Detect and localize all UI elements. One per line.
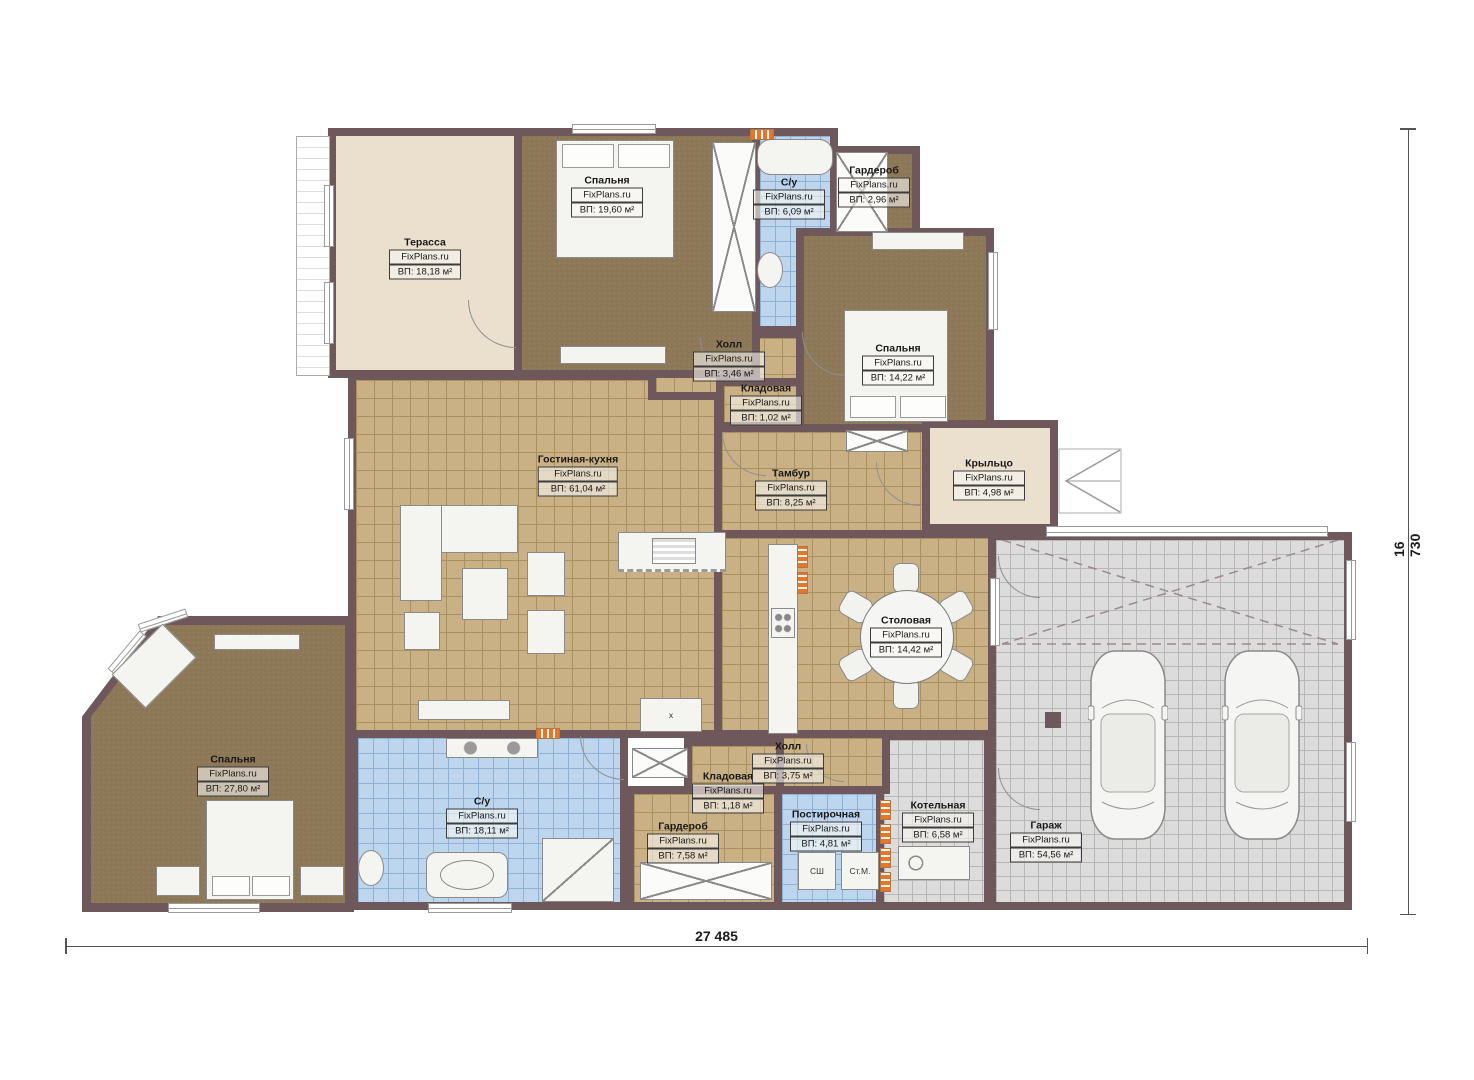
- dryer: СШ: [798, 852, 836, 890]
- room-label-bedroom-top: Спальня FixPlans.ru ВП: 19,60 м²: [571, 175, 643, 218]
- storage-closet: [632, 748, 688, 778]
- washing-machine: Ст.М.: [841, 852, 879, 890]
- side-table: x: [640, 698, 702, 732]
- bathtub-basin: [440, 860, 494, 890]
- kitchen-counter: [768, 544, 798, 734]
- room-label-bathroom-bottom: С/у FixPlans.ru ВП: 18,11 м²: [446, 796, 518, 839]
- window: [324, 185, 334, 247]
- sofa-chaise: [400, 505, 442, 601]
- cooktop: [771, 608, 795, 638]
- heater: [750, 129, 774, 140]
- double-sink: [446, 738, 538, 758]
- window: [572, 124, 656, 134]
- boiler-unit: [898, 846, 970, 880]
- dresser: [872, 232, 964, 250]
- window: [988, 252, 998, 330]
- toilet: [358, 850, 384, 886]
- armchair: [527, 610, 565, 654]
- room-label-hall-bottom: Холл FixPlans.ru ВП: 3,75 м²: [752, 741, 824, 784]
- room-label-bedroom-right: Спальня FixPlans.ru ВП: 14,22 м²: [862, 343, 934, 386]
- dimension-right-value: 16 730: [1391, 519, 1423, 557]
- floor-plan: x СШ Ст.М.: [0, 0, 1474, 1080]
- pillow: [212, 876, 250, 896]
- garage-column: [1045, 712, 1061, 728]
- wardrobe-closet: [640, 862, 772, 900]
- room-label-tambour: Тамбур FixPlans.ru ВП: 8,25 м²: [755, 468, 827, 511]
- room-label-living-kitchen: Гостиная-кухня FixPlans.ru ВП: 61,04 м²: [538, 454, 618, 497]
- nightstand: [300, 866, 344, 896]
- room-label-hall-top: Холл FixPlans.ru ВП: 3,46 м²: [693, 339, 765, 382]
- room-label-terrace: Терасса FixPlans.ru ВП: 18,18 м²: [389, 237, 461, 280]
- bathtub: [757, 139, 833, 175]
- door-bathroom-bottom: [580, 736, 624, 780]
- room-label-garage: Гараж FixPlans.ru ВП: 54,56 м²: [1010, 820, 1082, 863]
- heater: [797, 572, 808, 594]
- heater: [880, 824, 891, 844]
- pillow: [562, 144, 614, 168]
- room-label-bedroom-bottom: Спальня FixPlans.ru ВП: 27,80 м²: [197, 754, 269, 797]
- nightstand: [156, 866, 200, 896]
- tv-stand: [418, 700, 510, 720]
- bench-closet: [846, 430, 908, 452]
- garage-door-opening: [1046, 526, 1328, 537]
- room-label-wardrobe-bottom: Гардероб FixPlans.ru ВП: 7,58 м²: [647, 821, 719, 864]
- shower: [542, 838, 614, 902]
- dimension-right: 16 730: [1392, 128, 1426, 915]
- room-label-dining: Столовая FixPlans.ru ВП: 14,42 м²: [870, 615, 942, 658]
- window: [1346, 742, 1356, 822]
- heater: [880, 848, 891, 868]
- heater: [536, 728, 560, 739]
- armchair: [527, 552, 565, 596]
- pillow: [900, 396, 946, 418]
- room-label-wardrobe-top: Гардероб FixPlans.ru ВП: 2,96 м²: [838, 165, 910, 208]
- window: [324, 282, 334, 344]
- pillow: [252, 876, 290, 896]
- wardrobe-closet: [712, 142, 756, 312]
- dresser: [560, 346, 666, 364]
- dresser: [214, 634, 300, 650]
- kitchen-appliance: [652, 538, 696, 564]
- coffee-table: [462, 568, 508, 620]
- chair: [893, 563, 919, 593]
- car-icon: [1222, 648, 1302, 843]
- room-label-bathroom-top: С/у FixPlans.ru ВП: 6,09 м²: [753, 177, 825, 220]
- window: [168, 903, 260, 913]
- door-garage-bottom: [998, 768, 1040, 810]
- door-garage-top: [998, 556, 1040, 598]
- dimension-bottom: 27 485: [65, 930, 1368, 964]
- door-terrace: [468, 300, 516, 348]
- toilet: [757, 252, 783, 288]
- room-label-porch: Крыльцо FixPlans.ru ВП: 4,98 м²: [953, 458, 1025, 501]
- dimension-bottom-value: 27 485: [695, 928, 738, 944]
- window: [428, 903, 512, 913]
- room-label-storage-top: Кладовая FixPlans.ru ВП: 1,02 м²: [730, 383, 802, 426]
- window: [1346, 560, 1356, 640]
- garage-door-swing: [1002, 540, 1338, 648]
- car-icon: [1088, 648, 1168, 843]
- ottoman: [404, 612, 440, 650]
- heater: [880, 872, 891, 892]
- window: [344, 438, 354, 510]
- heater: [797, 546, 808, 568]
- room-label-laundry: Постирочная FixPlans.ru ВП: 4,81 м²: [790, 809, 862, 852]
- door-bedroom-right: [802, 332, 846, 376]
- pillow: [850, 396, 896, 418]
- porch-steps: [1058, 448, 1122, 514]
- room-label-boiler: Котельная FixPlans.ru ВП: 6,58 м²: [902, 800, 974, 843]
- heater: [880, 800, 891, 820]
- pillow: [618, 144, 670, 168]
- door-entrance: [876, 462, 920, 506]
